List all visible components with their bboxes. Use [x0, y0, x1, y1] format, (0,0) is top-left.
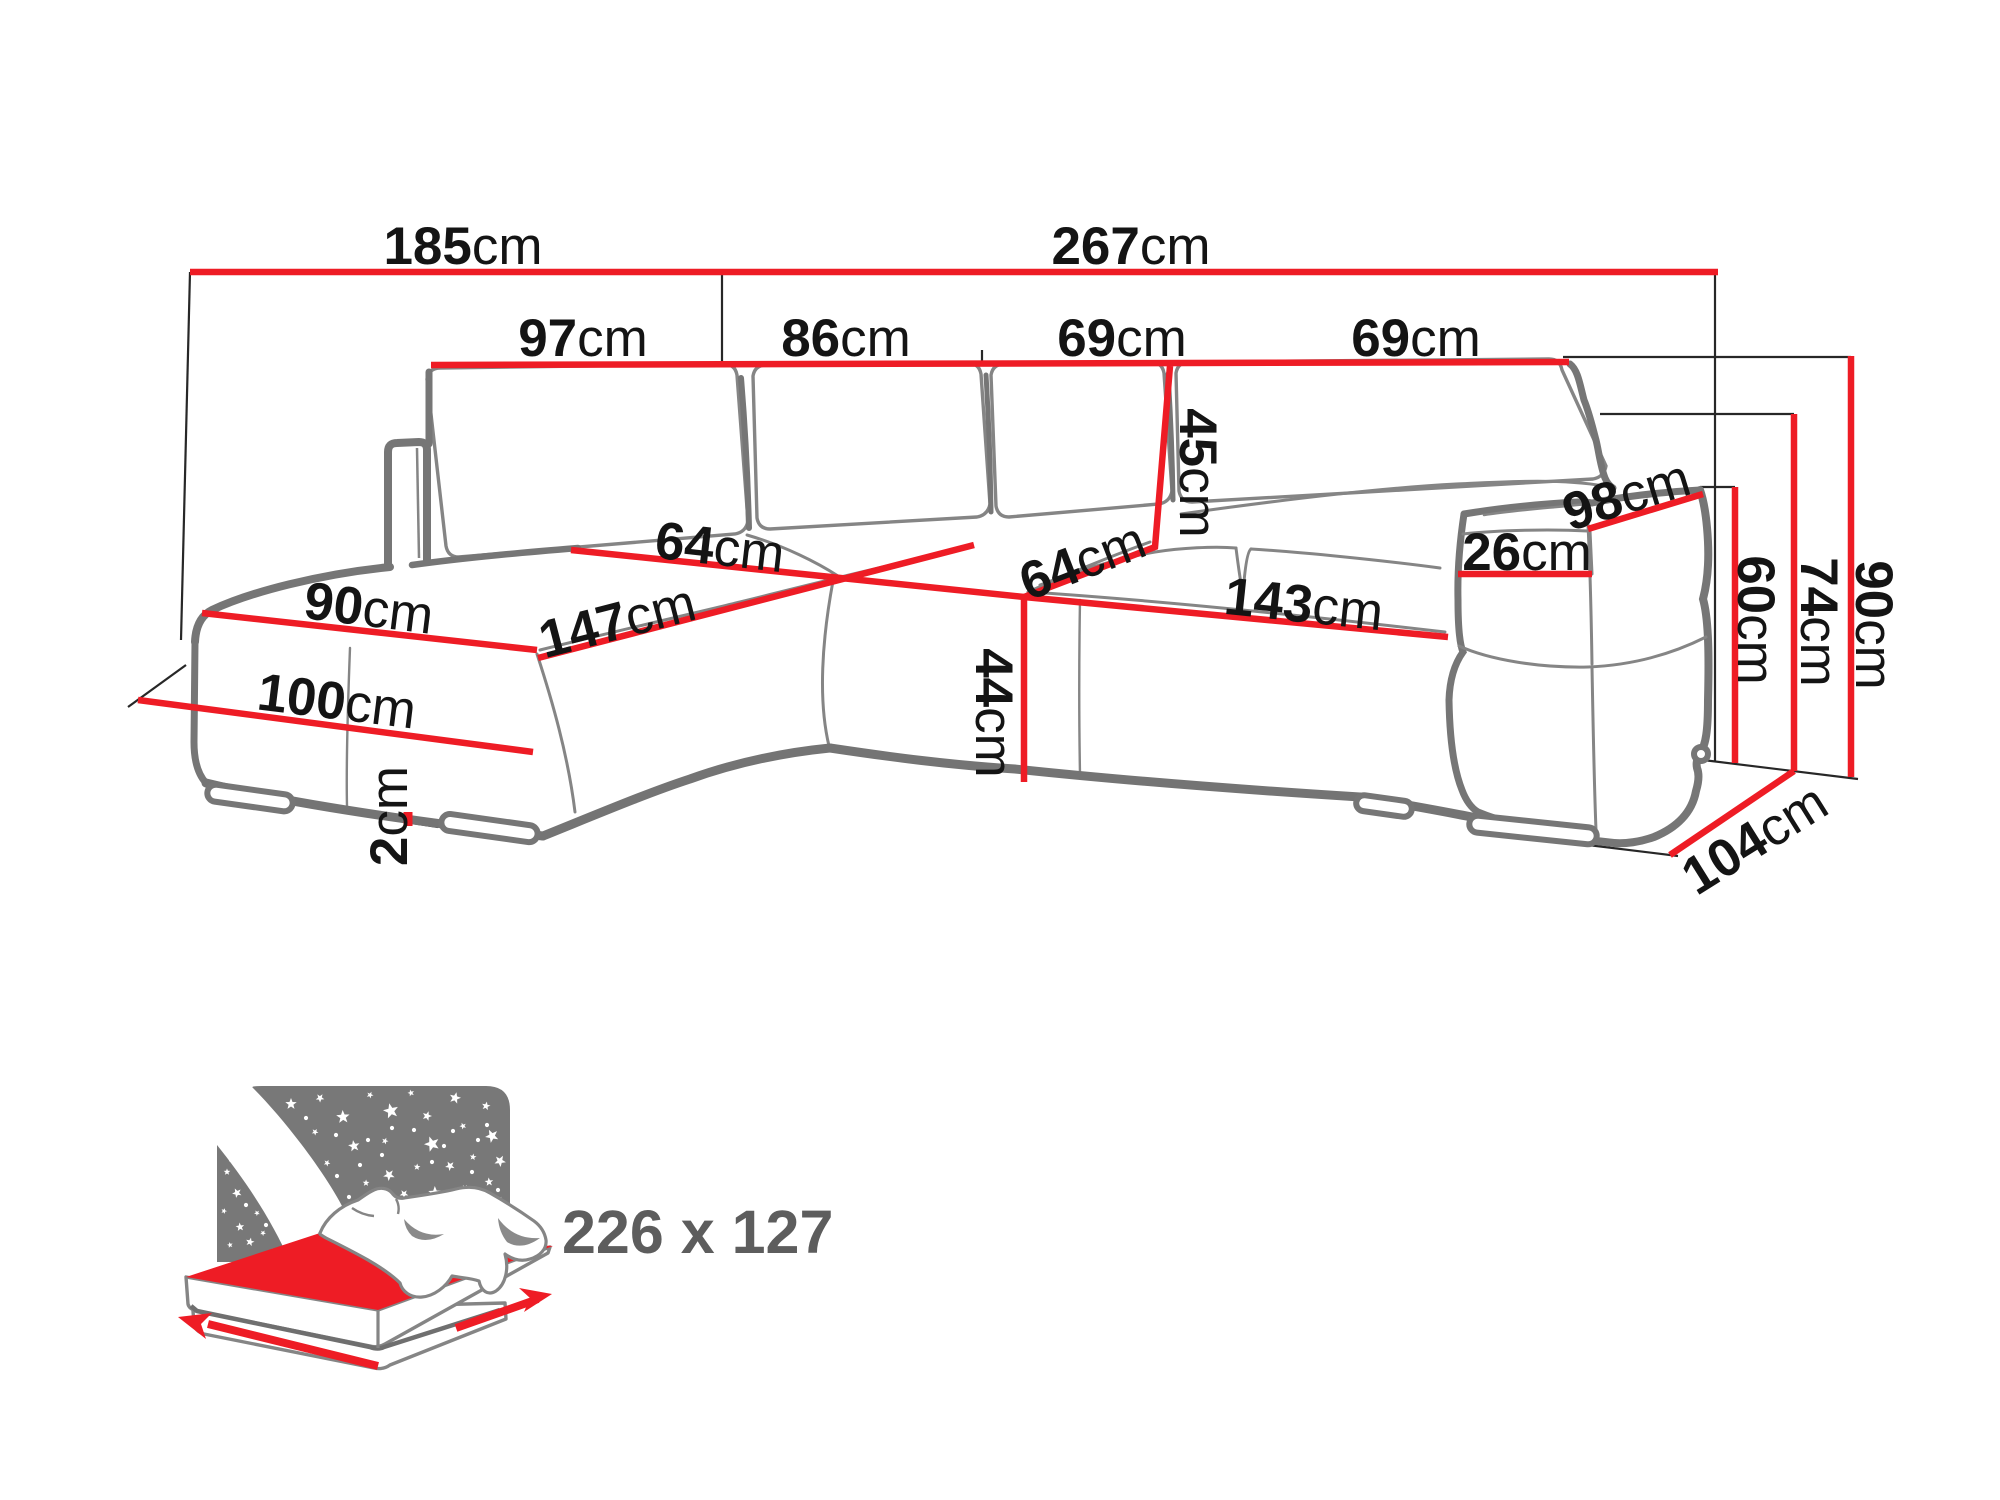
svg-text:185cm: 185cm	[383, 217, 542, 276]
svg-text:90cm: 90cm	[1844, 560, 1903, 690]
svg-text:97cm: 97cm	[518, 309, 648, 368]
svg-text:226 x 127: 226 x 127	[562, 1198, 833, 1266]
svg-text:60cm: 60cm	[1726, 555, 1785, 685]
svg-text:44cm: 44cm	[964, 648, 1023, 778]
svg-text:2cm: 2cm	[360, 766, 419, 866]
svg-text:86cm: 86cm	[781, 309, 911, 368]
svg-text:26cm: 26cm	[1462, 523, 1592, 582]
svg-text:74cm: 74cm	[1789, 557, 1848, 687]
svg-text:45cm: 45cm	[1168, 408, 1227, 538]
svg-text:69cm: 69cm	[1057, 309, 1187, 368]
svg-text:267cm: 267cm	[1051, 217, 1210, 276]
svg-text:69cm: 69cm	[1351, 309, 1481, 368]
